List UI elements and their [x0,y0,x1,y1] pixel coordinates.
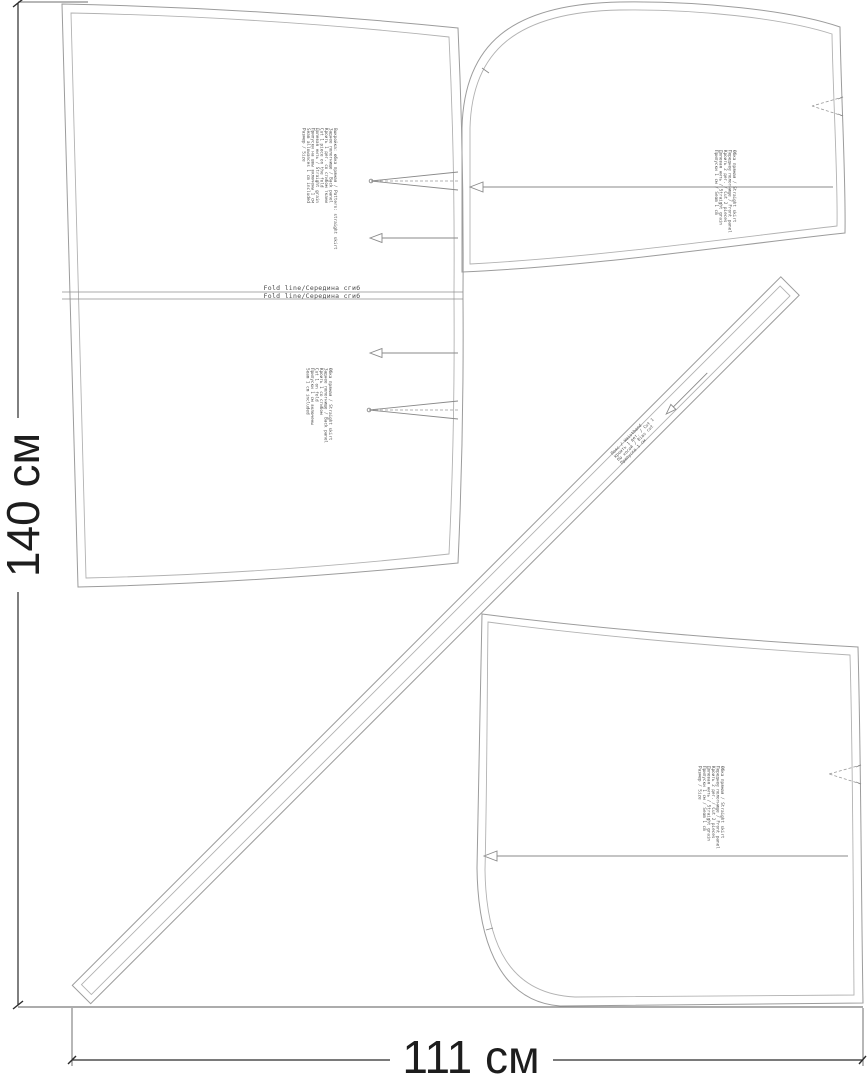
fold-label-bottom: Fold line/Середина сгиб [264,292,361,300]
piece-label-line: Размер / Size [301,128,307,162]
piece-label-line: Seam 1 cm included [305,368,311,415]
height-dimension-label: 140 см [0,433,49,577]
fold-label-top: Fold line/Середина сгиб [264,284,361,292]
piece-label-line: Припуски 1 см / Seam 1 cm [713,150,719,215]
pattern-layout-canvas: Fold line/Середина сгиб Fold line/Середи… [0,0,867,1080]
piece-label-line: Размер / Size [697,766,703,800]
width-dimension-label: 111 см [402,1031,539,1080]
